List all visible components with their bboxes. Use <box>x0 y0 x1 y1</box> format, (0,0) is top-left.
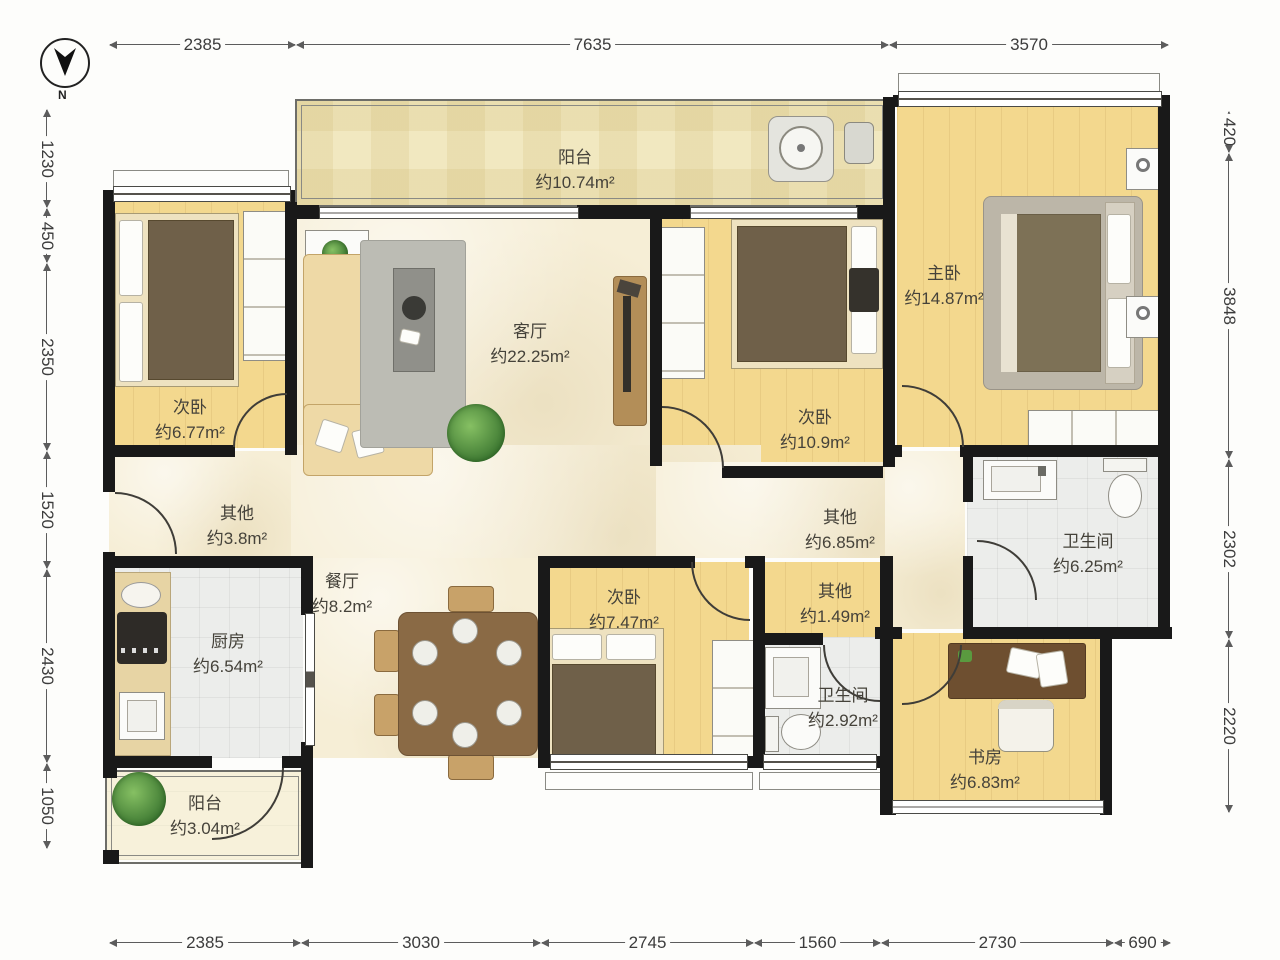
dimension-right-3: 2302 <box>1220 460 1238 638</box>
window <box>763 754 877 770</box>
dimension-value: 450 <box>37 217 57 253</box>
room-label-balcony-top: 阳台 约10.74m² <box>535 146 614 195</box>
dimension-value: 2730 <box>975 933 1021 953</box>
dimension-left-5: 2430 <box>38 570 56 762</box>
room-name: 客厅 <box>490 320 569 345</box>
wall <box>103 850 119 864</box>
wall <box>963 457 973 502</box>
room-area: 约6.85m² <box>805 531 875 556</box>
dimension-bottom-5: 2730 <box>882 934 1113 952</box>
room-area: 约10.74m² <box>535 171 614 196</box>
wall <box>103 768 117 778</box>
room-label-other-hall: 其他 约6.85m² <box>805 506 875 555</box>
wall <box>963 556 973 630</box>
room-label-bathroom-main: 卫生间 约6.25m² <box>1053 530 1123 579</box>
stove-icon <box>117 612 167 664</box>
dining-chair <box>448 754 494 780</box>
room-name: 阳台 <box>535 146 614 171</box>
room-area: 约7.47m² <box>589 611 659 636</box>
dimension-value: 1230 <box>37 136 57 182</box>
dimension-value: 420 <box>1219 114 1239 150</box>
dimension-left-2: 450 <box>38 209 56 262</box>
dimension-value: 2220 <box>1219 703 1239 749</box>
pillow <box>1107 214 1131 284</box>
kitchen-sliding-door <box>305 613 315 746</box>
pillow <box>552 634 602 660</box>
wardrobe <box>712 640 754 764</box>
dimension-value: 690 <box>1124 933 1160 953</box>
plate <box>452 618 478 644</box>
dimension-value: 3570 <box>1006 35 1052 55</box>
room-label-master-bedroom: 主卧 约14.87m² <box>904 262 983 311</box>
dimension-bottom-4: 1560 <box>755 934 880 952</box>
dimension-bottom-1: 2385 <box>110 934 300 952</box>
sink-basin <box>991 466 1041 492</box>
dimension-top-3: 3570 <box>890 36 1168 54</box>
dimension-value: 2745 <box>625 933 671 953</box>
wall <box>282 756 313 768</box>
dimension-right-2: 3848 <box>1220 154 1238 458</box>
plate <box>412 640 438 666</box>
sink-basin <box>773 657 809 697</box>
wall <box>577 205 690 219</box>
room-area: 约3.8m² <box>207 527 267 552</box>
paper-icon <box>1036 650 1069 688</box>
nightstand-lamp-icon <box>1136 306 1150 320</box>
wall <box>722 466 883 478</box>
stove-knobs <box>121 648 163 653</box>
wardrobe <box>659 227 705 379</box>
dimension-value: 7635 <box>570 35 616 55</box>
dining-chair <box>374 694 400 736</box>
dimension-bottom-3: 2745 <box>542 934 753 952</box>
plate <box>496 700 522 726</box>
wall <box>753 633 823 645</box>
bathroom-small-bay <box>759 772 881 790</box>
wall <box>293 205 319 219</box>
floor-plan: 阳台 约10.74m² 次卧 约6.77m² 客厅 约22.25m² 次卧 约1… <box>0 0 1280 960</box>
dimension-right-1: 420 <box>1220 112 1238 152</box>
range-hood-icon <box>121 582 161 608</box>
room-name: 其他 <box>805 506 875 531</box>
room-name: 次卧 <box>589 586 659 611</box>
room-name: 餐厅 <box>312 570 372 595</box>
wall <box>538 556 695 568</box>
washing-machine-dot <box>797 144 805 152</box>
bedroom-small-bay <box>545 772 753 790</box>
wall <box>893 445 902 457</box>
nightstand-lamp-icon <box>1136 158 1150 172</box>
compass-icon <box>40 38 90 88</box>
dimension-value: 1520 <box>37 487 57 533</box>
dimension-value: 2430 <box>37 643 57 689</box>
wall <box>538 556 550 768</box>
room-label-study: 书房 约6.83m² <box>950 746 1020 795</box>
blanket <box>737 226 847 362</box>
pillow <box>606 634 656 660</box>
pillow <box>119 302 143 382</box>
toilet-tank <box>1103 458 1147 472</box>
master-bay <box>898 73 1160 93</box>
dimension-value: 1560 <box>795 933 841 953</box>
dimension-bottom-2: 3030 <box>302 934 540 952</box>
room-label-other-entry: 其他 约3.8m² <box>207 502 267 551</box>
pillow <box>119 220 143 296</box>
dimension-bottom-6: 690 <box>1115 934 1170 952</box>
wall <box>753 556 765 768</box>
desk-chair-back <box>998 700 1054 709</box>
room-label-other-small: 其他 约1.49m² <box>800 580 870 629</box>
window <box>550 754 748 770</box>
dimension-left-3: 2350 <box>38 264 56 450</box>
dimension-left-1: 1230 <box>38 110 56 207</box>
dining-chair <box>448 586 494 612</box>
room-name: 厨房 <box>193 630 263 655</box>
faucet-icon <box>1038 466 1046 476</box>
wardrobe <box>243 211 289 361</box>
plant-icon <box>112 772 166 826</box>
room-label-kitchen: 厨房 约6.54m² <box>193 630 263 679</box>
room-name: 其他 <box>207 502 267 527</box>
wall <box>1100 639 1112 815</box>
north-arrow-icon <box>42 40 88 86</box>
plate <box>496 640 522 666</box>
room-area: 约1.49m² <box>800 605 870 630</box>
wall <box>1158 95 1170 639</box>
bed-sheet-fold <box>1001 214 1017 372</box>
room-name: 卫生间 <box>1053 530 1123 555</box>
toilet-tank <box>765 716 779 752</box>
dining-chair <box>374 630 400 672</box>
plate <box>412 700 438 726</box>
dimension-value: 2302 <box>1219 526 1239 572</box>
sofa <box>303 254 367 424</box>
wall <box>963 627 1172 639</box>
plate <box>452 722 478 748</box>
room-name: 阳台 <box>170 792 240 817</box>
room-area: 约14.87m² <box>904 287 983 312</box>
room-name: 主卧 <box>904 262 983 287</box>
bowl-icon <box>402 296 426 320</box>
sink-basin <box>127 700 157 732</box>
room-name: 次卧 <box>780 406 850 431</box>
coffee-table <box>393 268 435 372</box>
laundry-basket-icon <box>844 122 874 164</box>
dimension-value: 1050 <box>37 783 57 829</box>
dimension-right-4: 2220 <box>1220 640 1238 812</box>
dimension-top-1: 2385 <box>110 36 295 54</box>
floor-passage <box>885 451 965 629</box>
room-area: 约2.92m² <box>808 709 878 734</box>
dimension-value: 2350 <box>37 334 57 380</box>
room-label-living-room: 客厅 约22.25m² <box>490 320 569 369</box>
dimension-value: 3030 <box>398 933 444 953</box>
room-name: 次卧 <box>155 396 225 421</box>
window <box>898 91 1162 107</box>
wall <box>883 97 895 467</box>
tv-icon <box>623 296 631 392</box>
window <box>113 186 291 202</box>
room-label-bedroom-left: 次卧 约6.77m² <box>155 396 225 445</box>
dimension-left-6: 1050 <box>38 764 56 848</box>
room-label-bedroom-small: 次卧 约7.47m² <box>589 586 659 635</box>
room-label-bedroom-mid: 次卧 约10.9m² <box>780 406 850 455</box>
toilet-icon <box>1108 474 1142 518</box>
wall <box>960 445 1160 457</box>
room-area: 约3.04m² <box>170 817 240 842</box>
room-label-balcony-bottom: 阳台 约3.04m² <box>170 792 240 841</box>
wall <box>301 768 313 868</box>
room-area: 约10.9m² <box>780 431 850 456</box>
dimension-value: 2385 <box>180 35 226 55</box>
wall <box>880 556 893 768</box>
room-label-bathroom-small: 卫生间 约2.92m² <box>808 684 878 733</box>
room-area: 约6.77m² <box>155 421 225 446</box>
plant-icon <box>447 404 505 462</box>
blanket <box>148 220 234 380</box>
dimension-top-2: 7635 <box>297 36 888 54</box>
wall <box>103 756 212 768</box>
room-area: 约6.83m² <box>950 771 1020 796</box>
room-label-dining-room: 餐厅 约8.2m² <box>312 570 372 619</box>
room-area: 约6.25m² <box>1053 555 1123 580</box>
window <box>892 800 1104 814</box>
sliding-door <box>319 207 579 219</box>
compass-north-label: N <box>58 88 67 102</box>
wall <box>103 556 313 568</box>
room-name: 卫生间 <box>808 684 878 709</box>
room-area: 约6.54m² <box>193 655 263 680</box>
room-name: 书房 <box>950 746 1020 771</box>
room-area: 约22.25m² <box>490 345 569 370</box>
wardrobe <box>1028 410 1160 446</box>
dimension-value: 3848 <box>1219 283 1239 329</box>
dimension-left-4: 1520 <box>38 452 56 568</box>
wall <box>103 445 235 457</box>
wall <box>103 552 115 768</box>
bed-runner <box>849 268 879 312</box>
blanket <box>552 664 656 762</box>
dimension-value: 2385 <box>182 933 228 953</box>
sliding-door <box>690 207 858 219</box>
room-name: 其他 <box>800 580 870 605</box>
room-area: 约8.2m² <box>312 595 372 620</box>
wall <box>650 205 662 466</box>
